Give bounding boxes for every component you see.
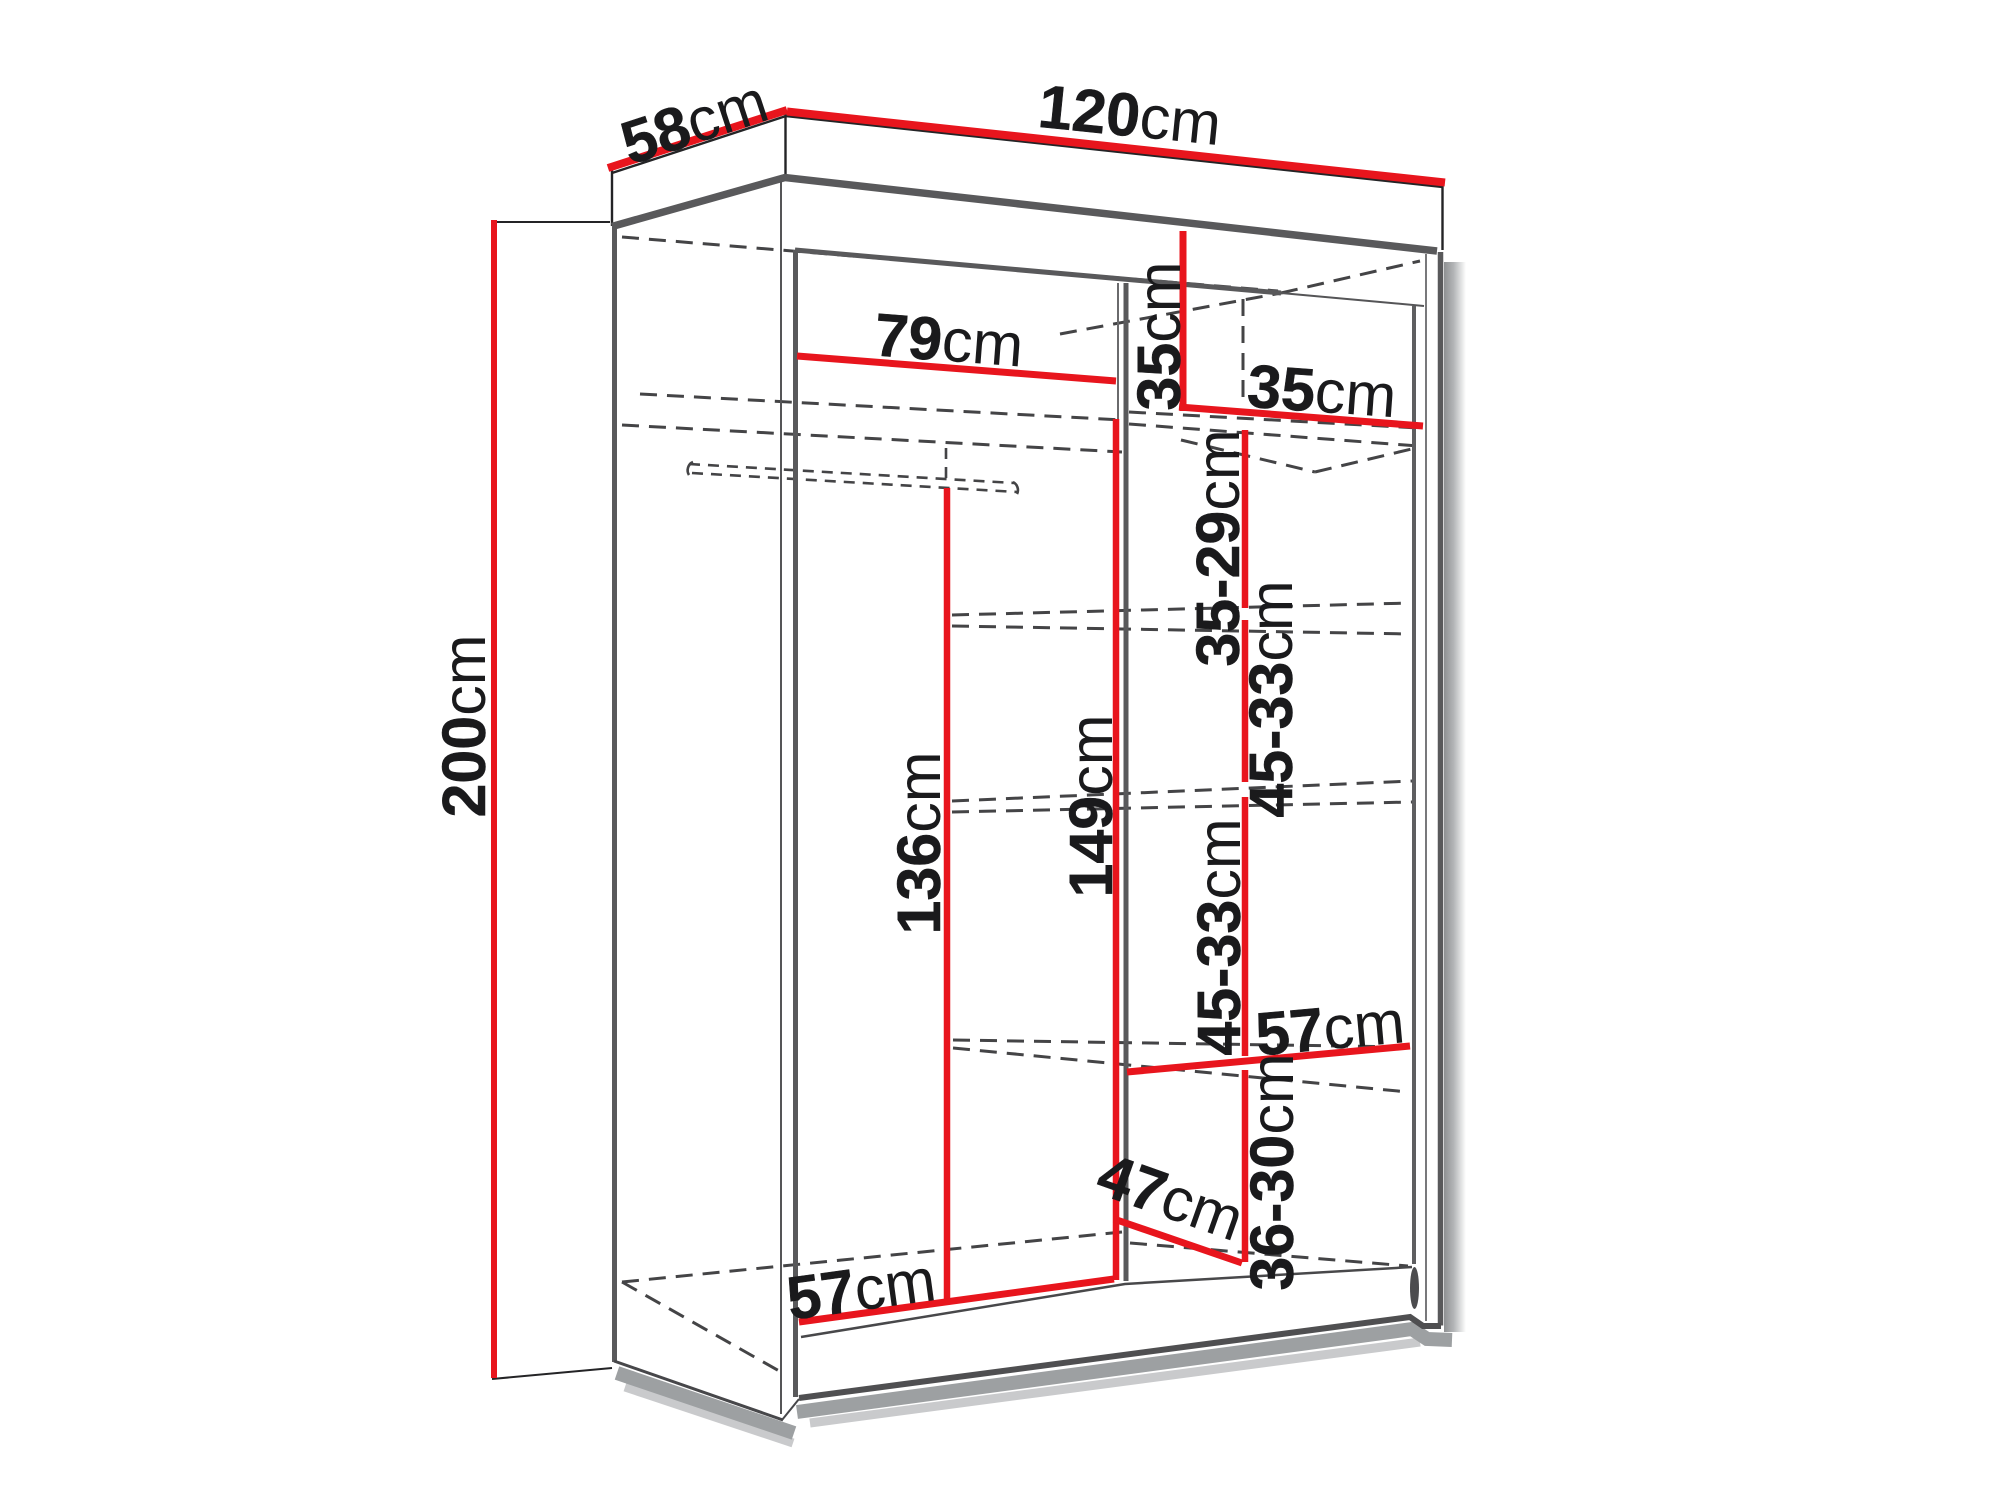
- svg-text:79cm: 79cm: [872, 300, 1026, 379]
- svg-text:149cm: 149cm: [1057, 714, 1125, 897]
- svg-text:45-33cm: 45-33cm: [1237, 580, 1305, 817]
- svg-text:36-30cm: 36-30cm: [1238, 1053, 1306, 1290]
- svg-text:45-33cm: 45-33cm: [1185, 818, 1253, 1055]
- svg-text:200cm: 200cm: [430, 634, 498, 817]
- svg-text:57cm: 57cm: [1253, 987, 1408, 1068]
- svg-text:35cm: 35cm: [1245, 352, 1399, 431]
- svg-text:136cm: 136cm: [885, 751, 953, 934]
- svg-text:35cm: 35cm: [1125, 261, 1193, 410]
